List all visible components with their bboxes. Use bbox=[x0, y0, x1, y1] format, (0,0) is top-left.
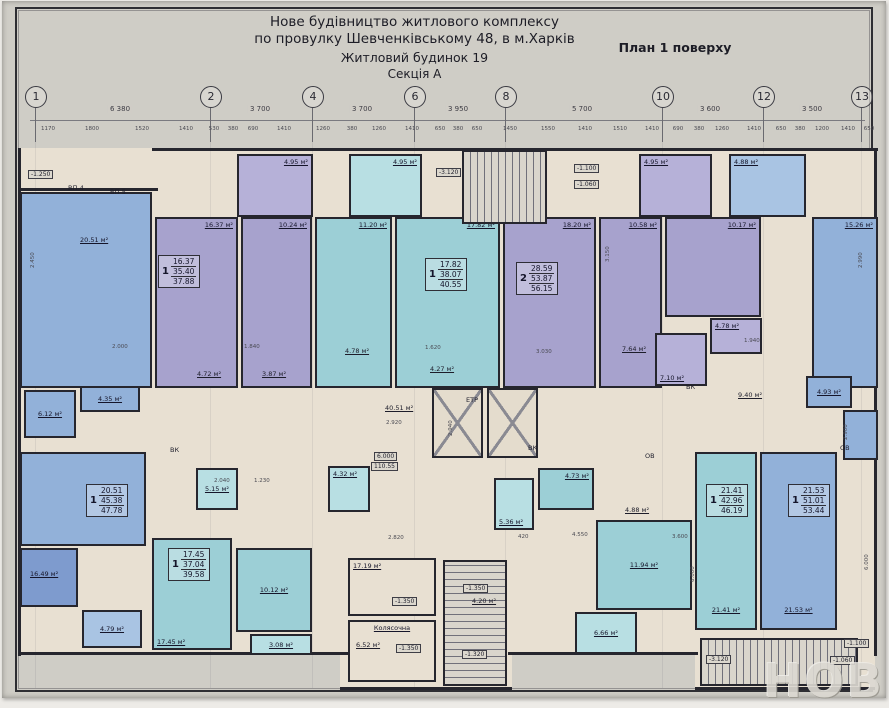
dimension-value: 1410 bbox=[179, 126, 193, 132]
plan-text: 2.000 bbox=[112, 344, 128, 350]
room-area-label: 4.73 м² bbox=[565, 472, 589, 480]
room-area-label: 16.49 м² bbox=[30, 570, 58, 578]
axis-leader bbox=[861, 108, 862, 142]
axis-leader bbox=[312, 108, 313, 142]
room-1017: 10.17 м² bbox=[665, 217, 761, 317]
plan-text: 3.150 bbox=[605, 246, 611, 262]
area-value: 28.59 bbox=[529, 264, 554, 274]
room-1012: 10.12 м² bbox=[236, 548, 312, 632]
room-308: 3.08 м² bbox=[250, 634, 312, 655]
axis-span-dim: 5 700 bbox=[570, 105, 594, 113]
room-1637: 16.37 м² bbox=[155, 217, 238, 388]
axis-leader bbox=[505, 108, 506, 142]
grid-axis-6: 6 bbox=[404, 86, 426, 108]
plan-text: 40.51 м² bbox=[385, 404, 413, 412]
room-area-label: 10.12 м² bbox=[260, 586, 288, 594]
axis-leader bbox=[35, 108, 36, 142]
room-536: 5.36 м² bbox=[494, 478, 534, 530]
plan-text: 1.620 bbox=[425, 345, 441, 351]
apartment-areas: 16.3735.4037.88 bbox=[171, 257, 196, 286]
area-value: 45.38 bbox=[99, 496, 124, 506]
area-value: 17.82 bbox=[438, 260, 463, 270]
axis-span-dim: 3 700 bbox=[248, 105, 272, 113]
plan-text: 6.52 м² bbox=[356, 641, 380, 649]
room-2141: 21.41 м² bbox=[695, 452, 757, 630]
apartment-rooms-count: 1 bbox=[792, 495, 799, 506]
plan-text: ВП-4 bbox=[68, 184, 84, 192]
elevation-mark: -1.100 bbox=[844, 639, 869, 648]
elevation-mark: -1.060 bbox=[574, 180, 599, 189]
plan-text: ВП-5 bbox=[110, 188, 126, 196]
grid-axis-2: 2 bbox=[200, 86, 222, 108]
dimension-value: 650 bbox=[864, 126, 875, 132]
balcony-495-a: 4.95 м² bbox=[237, 154, 313, 217]
room-area-label: 15.26 м² bbox=[845, 221, 873, 229]
room-area-label: 4.93 м² bbox=[817, 388, 841, 396]
area-value: 21.41 bbox=[719, 486, 744, 496]
apartment-stamp: 121.4142.9646.19 bbox=[706, 484, 748, 517]
plan-text: 4.78 м² bbox=[345, 347, 369, 355]
room-area-label: 3.08 м² bbox=[269, 641, 293, 649]
dimension-value: 650 bbox=[472, 126, 483, 132]
apartment-areas: 28.5953.8756.15 bbox=[529, 264, 554, 293]
room-koliasochna: Колясочна bbox=[348, 620, 436, 682]
dimension-value: 1410 bbox=[277, 126, 291, 132]
area-value: 20.51 bbox=[99, 486, 124, 496]
dimension-value: 690 bbox=[248, 126, 259, 132]
room-area-label: 6.12 м² bbox=[38, 410, 62, 418]
elevation-mark: -1.350 bbox=[463, 584, 488, 593]
stairs-bottom-center bbox=[443, 560, 507, 686]
grid-axis-1: 1 bbox=[25, 86, 47, 108]
room-area-label: 16.37 м² bbox=[205, 221, 233, 229]
axis-span-dim: 3 500 bbox=[800, 105, 824, 113]
area-value: 47.78 bbox=[99, 506, 124, 515]
dimension-value: 380 bbox=[694, 126, 705, 132]
plan-text: 2.940 bbox=[448, 420, 454, 436]
room-area-label: 4.32 м² bbox=[333, 470, 357, 478]
area-value: 38.07 bbox=[438, 270, 463, 280]
dimension-value: 1520 bbox=[135, 126, 149, 132]
plan-text: ВК bbox=[686, 383, 695, 391]
dimension-value: 1550 bbox=[541, 126, 555, 132]
elevation-mark: -1.250 bbox=[28, 170, 53, 179]
room-2153: 21.53 м² bbox=[760, 452, 837, 630]
grid-axis-8: 8 bbox=[495, 86, 517, 108]
dimension-value: 1410 bbox=[405, 126, 419, 132]
apartment-stamp: 117.4537.0439.58 bbox=[168, 548, 210, 581]
room-1782: 17.82 м² bbox=[395, 217, 500, 388]
room-area-label: 6.66 м² bbox=[594, 629, 618, 637]
apartment-rooms-count: 1 bbox=[710, 495, 717, 506]
balcony-495-c: 4.95 м² bbox=[639, 154, 712, 217]
grid-axis-4: 4 bbox=[302, 86, 324, 108]
plan-text: 2.900 bbox=[843, 424, 849, 440]
dimension-value: 530 bbox=[209, 126, 220, 132]
room-710: 7.10 м² bbox=[655, 333, 707, 386]
dimension-value: 1170 bbox=[41, 126, 55, 132]
dimension-value: 1800 bbox=[85, 126, 99, 132]
elevation-mark: -3.120 bbox=[436, 168, 461, 177]
apartment-stamp: 116.3735.4037.88 bbox=[158, 255, 200, 288]
dimension-value: 650 bbox=[435, 126, 446, 132]
apartment-areas: 17.4537.0439.58 bbox=[181, 550, 206, 579]
dimension-value: 380 bbox=[453, 126, 464, 132]
apartment-stamp: 121.5351.0153.44 bbox=[788, 484, 830, 517]
area-value: 51.01 bbox=[801, 496, 826, 506]
dimension-value: 1200 bbox=[815, 126, 829, 132]
room-612: 6.12 м² bbox=[24, 390, 76, 438]
vestibule-1719: 17.19 м² bbox=[348, 558, 436, 616]
apartment-stamp: 120.5145.3847.78 bbox=[86, 484, 128, 517]
room-area-label: 10.24 м² bbox=[279, 221, 307, 229]
room-area-label: 5.36 м² bbox=[499, 518, 523, 526]
dimension-value: 1260 bbox=[316, 126, 330, 132]
area-value: 16.37 bbox=[171, 257, 196, 267]
plan-text: 420 bbox=[518, 534, 529, 540]
wall-segment bbox=[340, 687, 512, 690]
plan-text: 2.450 bbox=[30, 252, 36, 268]
elevation-mark: -1.350 bbox=[396, 644, 421, 653]
plan-text: 4.72 м² bbox=[197, 370, 221, 378]
wall-segment bbox=[18, 188, 158, 191]
area-value: 40.55 bbox=[438, 280, 463, 289]
apartment-rooms-count: 1 bbox=[429, 269, 436, 280]
dimension-value: 1410 bbox=[578, 126, 592, 132]
plan-text: 4.27 м² bbox=[430, 365, 454, 373]
room-area-label: 21.41 м² bbox=[712, 606, 740, 614]
area-value: 21.53 bbox=[801, 486, 826, 496]
dimension-value: 1410 bbox=[645, 126, 659, 132]
plan-text: 4.88 м² bbox=[625, 506, 649, 514]
axis-leader bbox=[210, 108, 211, 142]
axis-span-dim: 3 600 bbox=[698, 105, 722, 113]
plan-text: 6.000 bbox=[864, 554, 870, 570]
elevation-mark: -1.320 bbox=[462, 650, 487, 659]
room-1526: 15.26 м² bbox=[812, 217, 878, 388]
plan-text: 1.230 bbox=[254, 478, 270, 484]
axis-span-dim: 3 950 bbox=[446, 105, 470, 113]
axis-leader bbox=[662, 108, 663, 142]
room-area-label: 11.20 м² bbox=[359, 221, 387, 229]
apartment-rooms-count: 1 bbox=[162, 266, 169, 277]
area-value: 37.88 bbox=[171, 277, 196, 286]
area-value: 37.04 bbox=[181, 560, 206, 570]
room-479: 4.79 м² bbox=[82, 610, 142, 648]
room-432: 4.32 м² bbox=[328, 466, 370, 512]
apartment-stamp: 117.8238.0740.55 bbox=[425, 258, 467, 291]
area-value: 39.58 bbox=[181, 570, 206, 579]
axis-span-dim: 6 380 bbox=[108, 105, 132, 113]
room-area-label: 20.51 м² bbox=[80, 236, 108, 244]
area-value: 56.15 bbox=[529, 284, 554, 293]
room-666: 6.66 м² bbox=[575, 612, 637, 654]
dimension-value: 690 bbox=[673, 126, 684, 132]
plan-text: ЕТР bbox=[466, 396, 478, 404]
apartment-stamp: 228.5953.8756.15 bbox=[516, 262, 558, 295]
plan-text: 6.000 bbox=[690, 566, 696, 582]
dimension-value: 1260 bbox=[715, 126, 729, 132]
apartment-areas: 17.8238.0740.55 bbox=[438, 260, 463, 289]
axis-leader bbox=[414, 108, 415, 142]
plan-text: ОВ bbox=[840, 444, 850, 452]
room-478-top: 4.78 м² bbox=[710, 318, 762, 354]
room-area-label: 10.58 м² bbox=[629, 221, 657, 229]
dimension-value: 380 bbox=[228, 126, 239, 132]
plan-text: 2.820 bbox=[388, 535, 404, 541]
room-2051-top: 20.51 м² bbox=[20, 192, 152, 388]
stairs-top bbox=[462, 150, 547, 224]
plan-text: 3.600 bbox=[672, 534, 688, 540]
room-area-label: Колясочна bbox=[374, 624, 410, 632]
room-area-label: 10.17 м² bbox=[728, 221, 756, 229]
room-area-label: 4.95 м² bbox=[393, 158, 417, 166]
grid-axis-line bbox=[312, 142, 313, 688]
room-area-label: 7.10 м² bbox=[660, 374, 684, 382]
area-value: 53.87 bbox=[529, 274, 554, 284]
plan-text: ВК bbox=[170, 446, 179, 454]
room-1649: 16.49 м² bbox=[20, 548, 78, 607]
room-area-label: 4.88 м² bbox=[734, 158, 758, 166]
plan-text: 3.030 bbox=[536, 349, 552, 355]
dimension-value: 380 bbox=[347, 126, 358, 132]
room-473: 4.73 м² bbox=[538, 468, 594, 510]
plan-text: ВК bbox=[528, 444, 537, 452]
plan-text: 4.20 м² bbox=[472, 597, 496, 605]
elevation-mark: -1.350 bbox=[392, 597, 417, 606]
plan-text: 3.87 м² bbox=[262, 370, 286, 378]
room-area-label: 4.95 м² bbox=[284, 158, 308, 166]
area-value: 17.45 bbox=[181, 550, 206, 560]
room-area-label: 4.79 м² bbox=[100, 625, 124, 633]
room-area-label: 4.78 м² bbox=[715, 322, 739, 330]
plan-text: 2.040 bbox=[214, 478, 230, 484]
plan-text: 2.920 bbox=[386, 420, 402, 426]
room-area-label: 17.45 м² bbox=[157, 638, 185, 646]
dimension-value: 1410 bbox=[841, 126, 855, 132]
room-area-label: 17.19 м² bbox=[353, 562, 381, 570]
grid-axis-10: 10 bbox=[652, 86, 674, 108]
drawing-sheet: Нове будівництво житлового комплексу по … bbox=[0, 0, 889, 700]
apartment-areas: 20.5145.3847.78 bbox=[99, 486, 124, 515]
apartment-areas: 21.5351.0153.44 bbox=[801, 486, 826, 515]
dimension-value: 1510 bbox=[613, 126, 627, 132]
plan-text: 9.40 м² bbox=[738, 391, 762, 399]
area-value: 35.40 bbox=[171, 267, 196, 277]
balcony-495-b: 4.95 м² bbox=[349, 154, 422, 217]
apartment-rooms-count: 1 bbox=[172, 559, 179, 570]
apartment-rooms-count: 1 bbox=[90, 495, 97, 506]
room-493: 4.93 м² bbox=[806, 376, 852, 408]
room-515: 5.15 м² bbox=[196, 468, 238, 510]
room-area-label: 11.94 м² bbox=[630, 561, 658, 569]
plan-text: ОВ bbox=[645, 452, 655, 460]
room-area-label: 18.20 м² bbox=[563, 221, 591, 229]
room-1024: 10.24 м² bbox=[241, 217, 312, 388]
room-1120: 11.20 м² bbox=[315, 217, 392, 388]
plan-text: 2.990 bbox=[858, 252, 864, 268]
plan-text: 1.840 bbox=[244, 344, 260, 350]
room-area-label: 5.15 м² bbox=[205, 485, 229, 493]
elevation-mark: 110.55 bbox=[371, 462, 398, 471]
apartment-areas: 21.4142.9646.19 bbox=[719, 486, 744, 515]
dimension-value: 380 bbox=[795, 126, 806, 132]
elevation-mark: -1.100 bbox=[574, 164, 599, 173]
area-value: 42.96 bbox=[719, 496, 744, 506]
plan-text: 7.64 м² bbox=[622, 345, 646, 353]
floor-plan: 4.95 м²4.95 м²4.95 м²4.88 м²20.51 м²16.3… bbox=[0, 0, 889, 700]
dimension-value: 650 bbox=[776, 126, 787, 132]
room-area-label: 4.95 м² bbox=[644, 158, 668, 166]
plan-text: 1.940 bbox=[744, 338, 760, 344]
room-1820: 18.20 м² bbox=[503, 217, 596, 388]
area-value: 46.19 bbox=[719, 506, 744, 515]
grid-axis-12: 12 bbox=[753, 86, 775, 108]
apartment-rooms-count: 2 bbox=[520, 273, 527, 284]
dimension-value: 1410 bbox=[747, 126, 761, 132]
elevation-mark: 6.000 bbox=[374, 452, 397, 461]
dimension-value: 1260 bbox=[372, 126, 386, 132]
axis-leader bbox=[763, 108, 764, 142]
elevation-mark: -3.120 bbox=[706, 655, 731, 664]
room-1058: 10.58 м² bbox=[599, 217, 662, 388]
room-area-label: 4.35 м² bbox=[98, 395, 122, 403]
plan-text: 4.550 bbox=[572, 532, 588, 538]
area-value: 53.44 bbox=[801, 506, 826, 515]
room-area-label: 21.53 м² bbox=[784, 606, 812, 614]
balcony-488: 4.88 м² bbox=[729, 154, 806, 217]
axis-span-dim: 3 700 bbox=[350, 105, 374, 113]
grid-axis-13: 13 bbox=[851, 86, 873, 108]
dimension-value: 1450 bbox=[503, 126, 517, 132]
room-435: 4.35 м² bbox=[80, 386, 140, 412]
